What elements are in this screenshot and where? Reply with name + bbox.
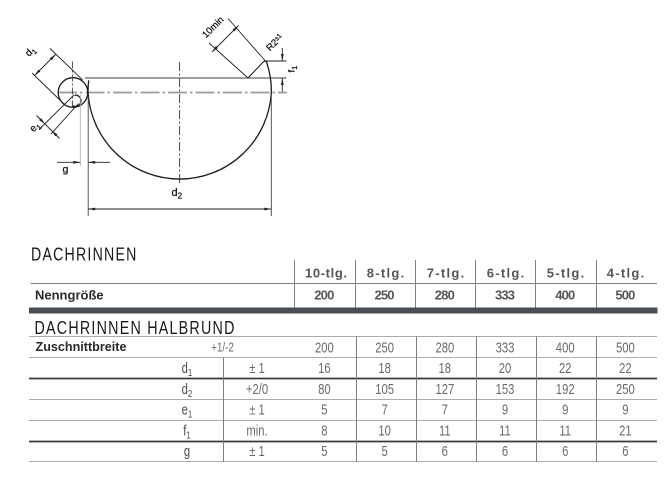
svg-text:+2/0: +2/0 (246, 380, 268, 397)
svg-text:7: 7 (442, 401, 448, 418)
svg-text:10-tlg.: 10-tlg. (305, 266, 347, 281)
svg-text:400: 400 (556, 339, 575, 356)
svg-text:d2: d2 (172, 187, 183, 201)
svg-text:9: 9 (622, 401, 628, 418)
svg-text:4-tlg.: 4-tlg. (607, 266, 645, 281)
svg-text:e1: e1 (182, 401, 193, 420)
svg-text:g: g (63, 164, 69, 176)
svg-text:10: 10 (378, 422, 391, 439)
svg-text:DACHRINNEN HALBRUND: DACHRINNEN HALBRUND (35, 317, 236, 338)
svg-text:g: g (184, 442, 190, 459)
svg-text:5: 5 (321, 442, 327, 459)
svg-text:7: 7 (381, 401, 387, 418)
svg-text:f1: f1 (287, 66, 300, 73)
svg-text:10min: 10min (200, 15, 226, 41)
svg-text:6: 6 (502, 442, 508, 459)
svg-text:250: 250 (375, 339, 394, 356)
svg-text:22: 22 (619, 360, 632, 377)
svg-text:± 1: ± 1 (249, 401, 265, 418)
svg-text:250: 250 (375, 288, 395, 303)
svg-text:18: 18 (378, 360, 391, 377)
svg-text:333: 333 (495, 288, 515, 303)
svg-text:21: 21 (619, 422, 632, 439)
svg-text:200: 200 (314, 288, 334, 303)
svg-text:DACHRINNEN: DACHRINNEN (31, 245, 138, 265)
svg-text:200: 200 (315, 339, 334, 356)
svg-text:280: 280 (435, 339, 454, 356)
svg-text:153: 153 (496, 380, 515, 397)
svg-text:5: 5 (381, 442, 387, 459)
svg-text:105: 105 (375, 380, 394, 397)
svg-text:min.: min. (246, 422, 267, 439)
svg-text:11: 11 (439, 422, 451, 439)
svg-text:e1: e1 (28, 120, 44, 136)
svg-text:9: 9 (502, 401, 508, 418)
svg-text:18: 18 (439, 360, 452, 377)
svg-text:500: 500 (616, 339, 635, 356)
svg-text:11: 11 (499, 422, 511, 439)
svg-text:7-tlg.: 7-tlg. (427, 266, 465, 281)
svg-text:d2: d2 (182, 380, 193, 399)
svg-text:6: 6 (562, 442, 568, 459)
svg-text:250: 250 (616, 380, 635, 397)
svg-text:6: 6 (622, 442, 628, 459)
svg-text:5: 5 (321, 401, 327, 418)
svg-text:127: 127 (435, 380, 454, 397)
svg-text:± 1: ± 1 (249, 360, 265, 377)
svg-text:6: 6 (442, 442, 448, 459)
svg-text:6-tlg.: 6-tlg. (487, 266, 525, 281)
svg-text:500: 500 (615, 288, 635, 303)
svg-text:Nenngröße: Nenngröße (35, 288, 104, 303)
svg-text:333: 333 (496, 339, 515, 356)
svg-text:192: 192 (556, 380, 575, 397)
svg-text:5-tlg.: 5-tlg. (547, 266, 585, 281)
svg-text:22: 22 (559, 360, 572, 377)
svg-text:8-tlg.: 8-tlg. (367, 266, 405, 281)
svg-text:Zuschnittbreite: Zuschnittbreite (36, 339, 127, 354)
svg-text:280: 280 (435, 288, 455, 303)
svg-text:8: 8 (321, 422, 327, 439)
svg-text:80: 80 (318, 380, 331, 397)
svg-text:d1: d1 (182, 360, 193, 379)
svg-text:11: 11 (559, 422, 571, 439)
svg-text:9: 9 (562, 401, 568, 418)
svg-text:f1: f1 (183, 422, 191, 441)
svg-text:20: 20 (499, 360, 512, 377)
svg-text:400: 400 (555, 288, 575, 303)
svg-text:R2±1: R2±1 (264, 32, 286, 54)
svg-text:d1: d1 (23, 44, 39, 60)
svg-text:± 1: ± 1 (249, 442, 265, 459)
svg-text:16: 16 (318, 360, 331, 377)
svg-text:+1/-2: +1/-2 (211, 341, 234, 355)
